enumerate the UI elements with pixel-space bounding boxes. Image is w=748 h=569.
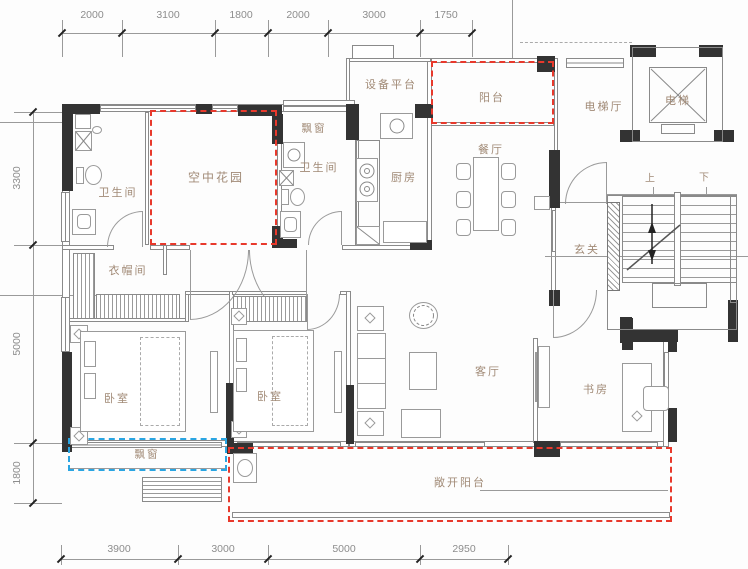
room-label-dining: 餐厅 xyxy=(478,141,504,157)
dim-top-4: 2000 xyxy=(286,9,309,21)
ac-unit xyxy=(142,477,222,502)
room-label-bath2: 卫生间 xyxy=(300,159,339,175)
witness-line xyxy=(653,187,654,195)
balcony-parapet xyxy=(232,512,670,518)
room-label-open-balcony: 敞开阳台 xyxy=(434,474,486,490)
room-label-equipment: 设备平台 xyxy=(365,76,417,92)
door-arc-bedroom2 xyxy=(307,294,340,330)
blanket xyxy=(272,336,308,426)
witness-line xyxy=(14,112,62,113)
dining-table xyxy=(473,157,499,231)
elevator-door xyxy=(661,124,695,134)
window xyxy=(552,210,556,252)
sink-basin xyxy=(284,217,297,232)
chair xyxy=(501,163,516,180)
room-label-bath1: 卫生间 xyxy=(99,184,138,200)
witness-line xyxy=(472,20,473,57)
wall-segment xyxy=(150,245,190,250)
room-label-bay-top: 飘窗 xyxy=(302,121,327,136)
desk-chair xyxy=(643,386,669,411)
wall-black xyxy=(346,385,354,444)
equipment-vent xyxy=(352,45,394,59)
pillow xyxy=(84,341,96,367)
dim-bottom-3: 5000 xyxy=(332,543,355,555)
washing-machine xyxy=(279,170,294,186)
dim-bottom-4: 2950 xyxy=(452,543,475,555)
chair xyxy=(456,163,471,180)
tv-screen xyxy=(535,352,537,402)
witness-line xyxy=(512,0,513,60)
dim-bottom-1: 3900 xyxy=(107,543,130,555)
stairs-down-label: 下 xyxy=(699,169,711,184)
dim-top-2: 3100 xyxy=(156,9,179,21)
round-table xyxy=(409,302,438,329)
toilet-bowl xyxy=(290,188,305,206)
blanket xyxy=(140,337,180,426)
witness-line xyxy=(0,122,62,123)
room-label-bedroom1: 卧室 xyxy=(104,390,130,406)
door-arc-bath1 xyxy=(107,211,143,247)
door-arc-entry xyxy=(565,162,607,204)
window xyxy=(61,297,70,352)
pillow xyxy=(236,368,247,392)
witness-line xyxy=(328,20,329,57)
dim-left-3: 1800 xyxy=(11,461,23,484)
wardrobe xyxy=(73,253,95,319)
wall-segment xyxy=(145,112,149,245)
wall-black xyxy=(346,104,359,140)
chair xyxy=(501,191,516,208)
balcony-line xyxy=(480,490,668,491)
faucet xyxy=(92,126,102,134)
dim-top-3: 1800 xyxy=(229,9,252,21)
sofa-cushion-line xyxy=(357,358,386,359)
tv-panel xyxy=(210,351,218,413)
toilet-tank xyxy=(281,189,289,205)
room-label-balcony: 阳台 xyxy=(479,89,505,105)
bottom-ruler-line xyxy=(61,559,508,560)
mop-sink-basin xyxy=(237,459,253,477)
coffee-table xyxy=(409,352,437,390)
door-arc-bath2 xyxy=(308,211,342,245)
room-label-foyer: 玄关 xyxy=(574,241,600,257)
wall-black xyxy=(62,113,73,191)
wardrobe xyxy=(96,294,180,319)
toilet-tank xyxy=(76,167,84,184)
stairs-up-label: 上 xyxy=(645,170,657,185)
left-ruler-line xyxy=(33,112,34,503)
room-label-bedroom2: 卧室 xyxy=(257,388,283,404)
witness-line xyxy=(122,20,123,57)
corner-cabinet xyxy=(356,226,380,245)
dim-left-2: 5000 xyxy=(11,332,23,355)
room-label-cloakroom: 衣帽间 xyxy=(109,262,148,278)
room-label-elevator-hall: 电梯厅 xyxy=(585,98,624,114)
wall-segment xyxy=(163,245,167,275)
door-arc-study xyxy=(553,290,597,338)
dim-bottom-2: 3000 xyxy=(211,543,234,555)
witness-line xyxy=(14,503,62,504)
chair xyxy=(456,191,471,208)
sofa-cushion-line xyxy=(357,383,386,384)
stove xyxy=(356,158,378,202)
sink-basin xyxy=(77,214,91,229)
room-label-study: 书房 xyxy=(583,381,609,397)
window xyxy=(566,58,624,68)
armchair xyxy=(401,409,441,438)
sofa xyxy=(357,333,386,409)
witness-line xyxy=(268,20,269,57)
witness-line xyxy=(215,20,216,57)
witness-line xyxy=(62,20,63,57)
room-label-bay-bottom: 飘窗 xyxy=(135,447,160,462)
room-label-living: 客厅 xyxy=(475,363,501,379)
dim-top-5: 3000 xyxy=(362,9,385,21)
chair xyxy=(501,219,516,236)
wall-black xyxy=(549,150,560,208)
stair-landing xyxy=(652,283,707,308)
window xyxy=(61,192,70,242)
stair-right-wall xyxy=(730,195,737,303)
cabinet xyxy=(75,114,91,129)
shaft-wall-hatch xyxy=(607,202,620,291)
dim-top-6: 1750 xyxy=(434,9,457,21)
witness-line xyxy=(14,443,62,444)
witness-line xyxy=(706,187,707,195)
tv-panel xyxy=(334,351,342,413)
wall-black xyxy=(668,334,677,352)
chair xyxy=(456,219,471,236)
wall-black xyxy=(668,408,677,442)
wall-segment xyxy=(185,291,189,322)
witness-line xyxy=(14,245,62,246)
witness-line xyxy=(420,20,421,57)
tv-cabinet xyxy=(538,346,550,408)
kitchen-sink xyxy=(380,113,413,139)
wall-black xyxy=(277,239,297,248)
dim-left-1: 3300 xyxy=(11,166,23,189)
roof-dashed-line xyxy=(520,42,632,43)
dim-top-1: 2000 xyxy=(80,9,103,21)
cabinet xyxy=(534,196,550,210)
cabinet xyxy=(383,221,427,243)
stair-divider xyxy=(674,192,681,286)
pillow xyxy=(236,338,247,362)
room-label-sky-garden: 空中花园 xyxy=(188,169,244,186)
room-label-elevator: 电梯 xyxy=(665,92,691,108)
floor-plan: 2000 3100 1800 2000 3000 1750 3300 5000 … xyxy=(0,0,748,569)
room-label-kitchen: 厨房 xyxy=(391,169,417,185)
washing-machine xyxy=(75,131,92,151)
toilet-bowl xyxy=(85,165,102,185)
pillow xyxy=(84,373,96,399)
bay-window-top xyxy=(283,100,355,112)
